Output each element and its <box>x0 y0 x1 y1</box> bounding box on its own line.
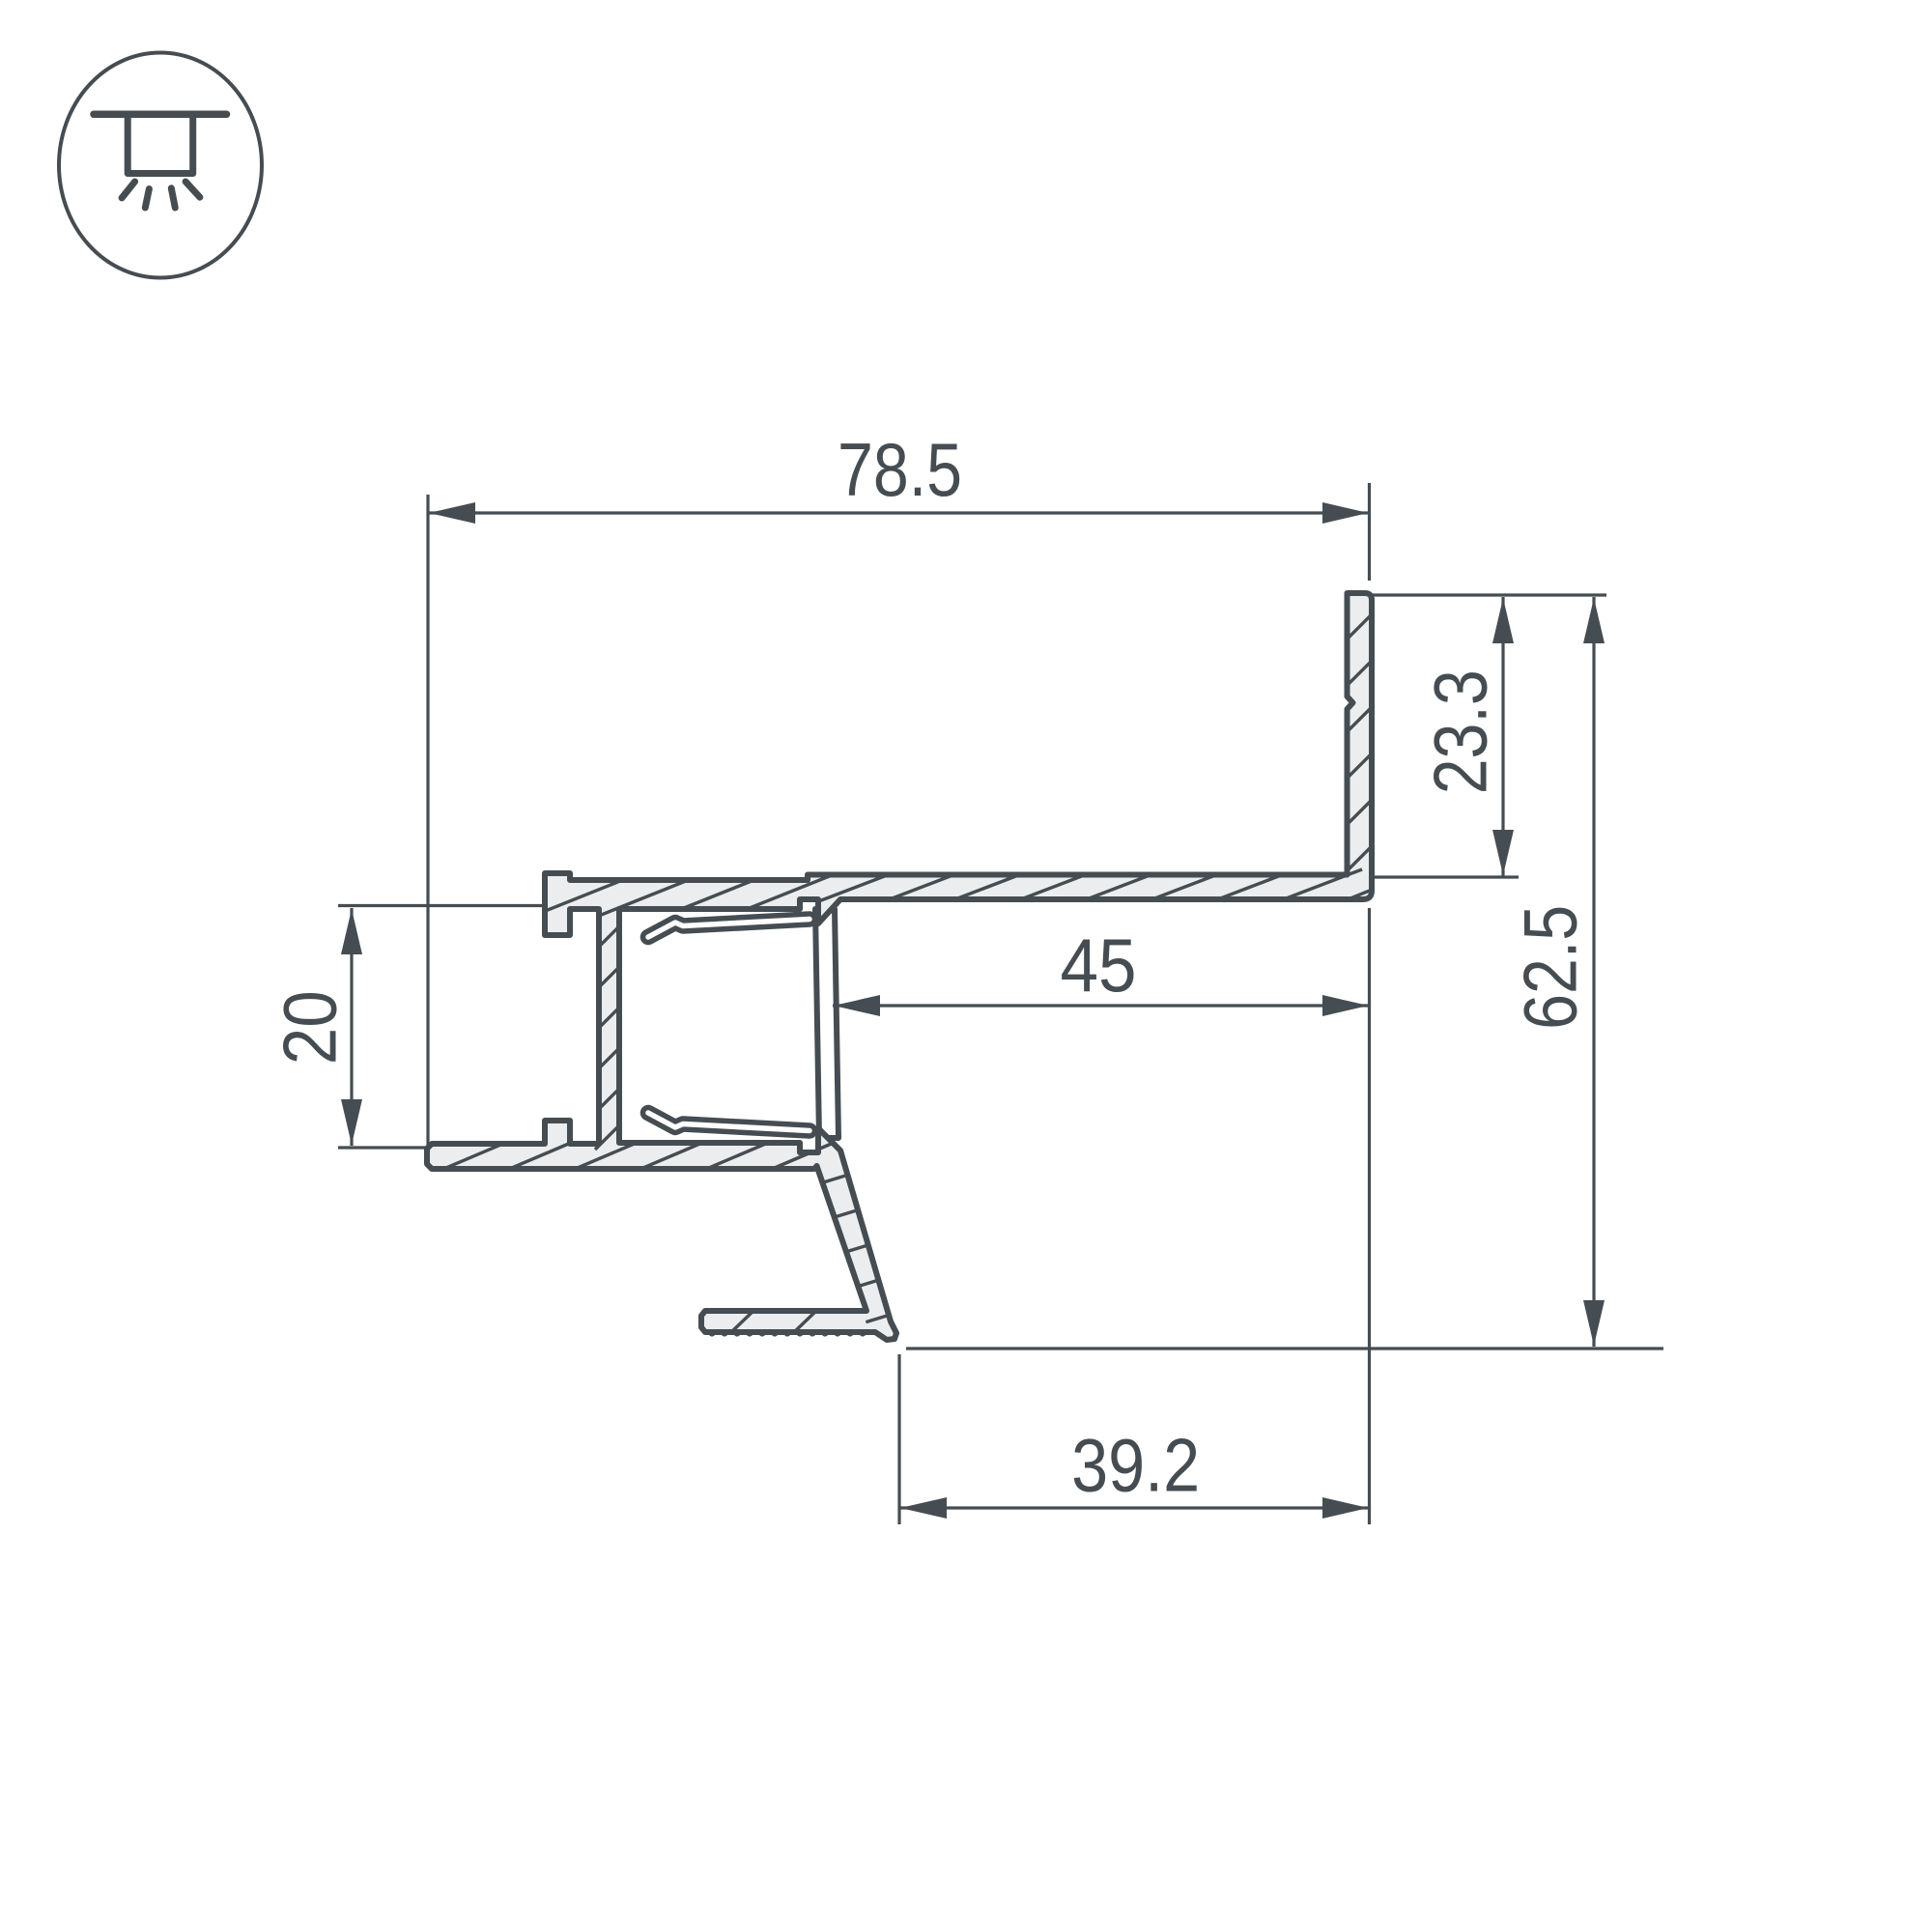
svg-text:20: 20 <box>268 990 353 1065</box>
svg-text:45: 45 <box>1061 923 1137 1008</box>
svg-text:62.5: 62.5 <box>1508 905 1593 1030</box>
svg-text:78.5: 78.5 <box>838 427 962 512</box>
svg-text:39.2: 39.2 <box>1071 1423 1200 1508</box>
svg-text:23.3: 23.3 <box>1418 669 1503 794</box>
